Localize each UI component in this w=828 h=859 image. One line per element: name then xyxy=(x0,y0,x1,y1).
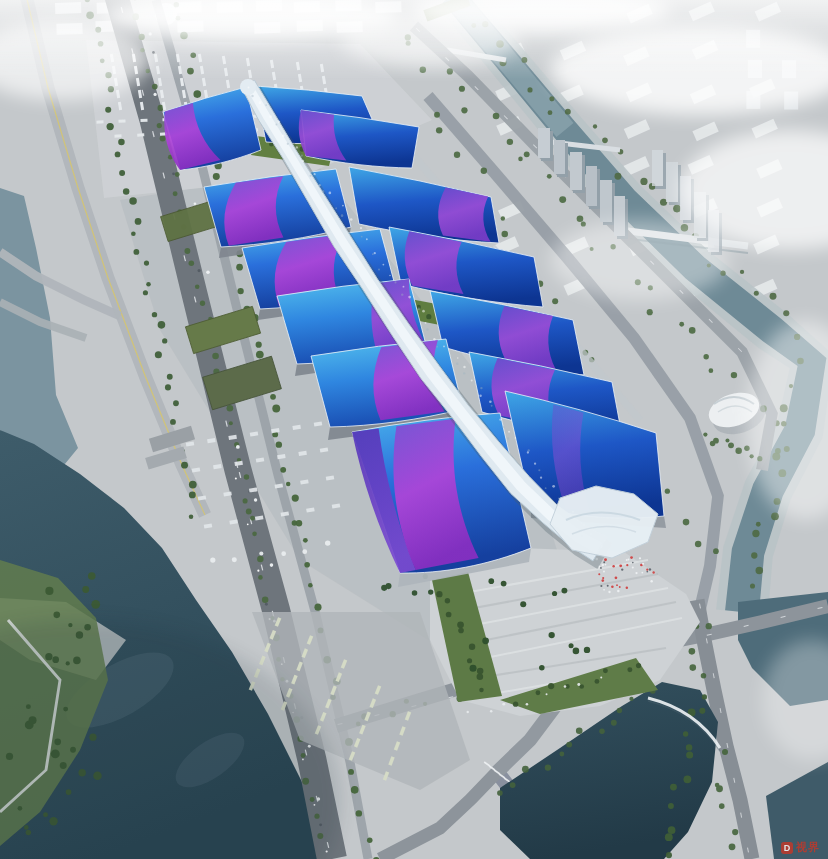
tower-8 xyxy=(666,162,681,205)
tower-3 xyxy=(570,152,585,193)
watermark: D 视界 xyxy=(781,840,820,855)
haze-top-overlay xyxy=(0,0,828,80)
tower-1 xyxy=(538,128,553,161)
tower-7 xyxy=(652,150,666,189)
fog-8 xyxy=(550,220,730,300)
tower-4 xyxy=(586,166,600,209)
scene-root xyxy=(0,0,828,859)
aerial-rendering: D 视界 xyxy=(0,0,828,859)
roof-ribbon-r3 xyxy=(405,231,464,294)
roof-ribbon-r2 xyxy=(438,187,490,241)
watermark-logo-icon: D xyxy=(781,842,793,854)
tower-5 xyxy=(600,180,615,225)
tower-2 xyxy=(554,140,568,177)
exhibition-center-scene xyxy=(0,0,828,859)
watermark-text: 视界 xyxy=(796,840,820,855)
